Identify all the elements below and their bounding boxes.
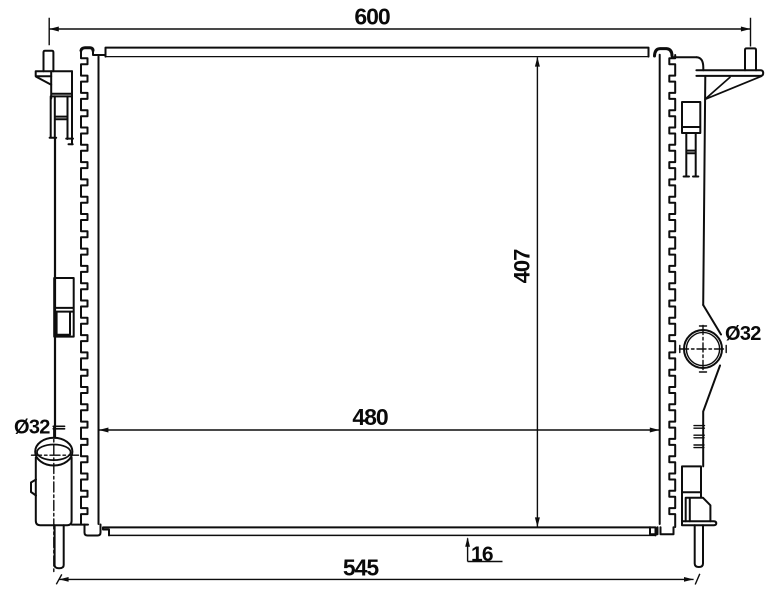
svg-text:Ø32: Ø32 <box>14 416 50 438</box>
svg-text:600: 600 <box>354 4 390 30</box>
svg-text:Ø32: Ø32 <box>725 323 761 345</box>
svg-text:480: 480 <box>352 404 388 430</box>
svg-text:545: 545 <box>343 555 380 581</box>
svg-text:407: 407 <box>510 249 535 283</box>
svg-text:16: 16 <box>471 543 493 566</box>
